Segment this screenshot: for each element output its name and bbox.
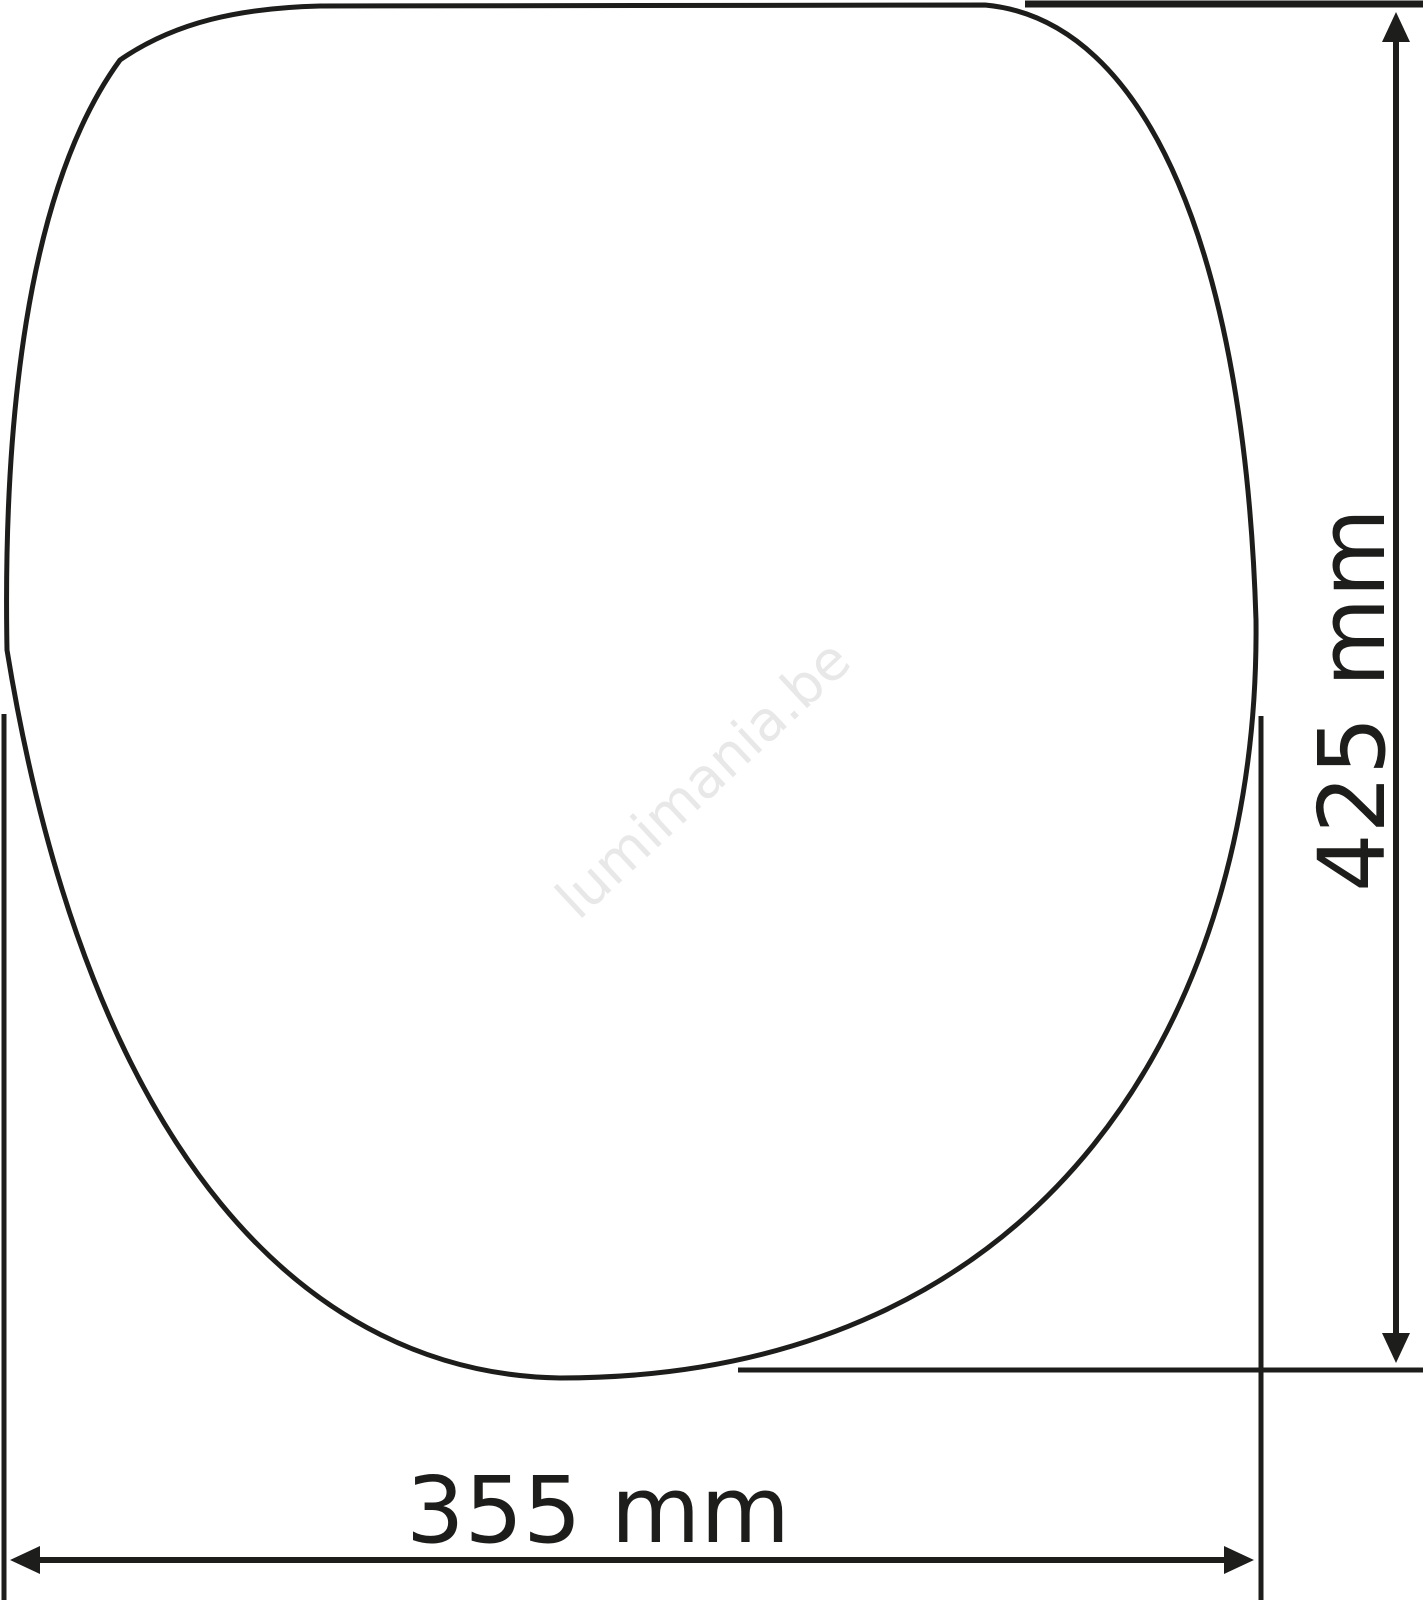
watermark-text: lumimania.be [544,627,863,930]
seat-outline [7,5,1256,1378]
width-arrow-right-icon [1224,1546,1254,1574]
height-arrow-down-icon [1382,1333,1410,1363]
height-arrow-up-icon [1382,12,1410,42]
dimension-drawing: lumimania.be 425 mm 355 mm [0,0,1426,1600]
drawing-svg: lumimania.be 425 mm 355 mm [0,0,1426,1600]
width-dimension-label: 355 mm [406,1457,790,1564]
height-dimension-label: 425 mm [1299,508,1406,892]
width-arrow-left-icon [10,1546,40,1574]
